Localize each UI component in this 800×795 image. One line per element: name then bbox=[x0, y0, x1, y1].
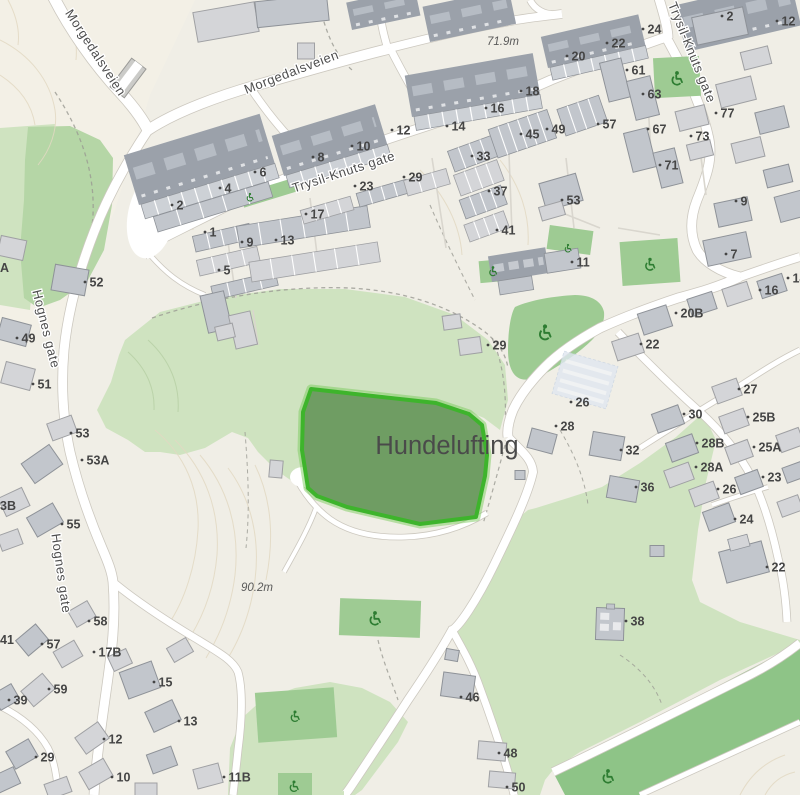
svg-text:37: 37 bbox=[494, 185, 508, 199]
svg-text:16: 16 bbox=[491, 102, 505, 116]
svg-text:11B: 11B bbox=[229, 771, 251, 785]
svg-text:25B: 25B bbox=[753, 411, 776, 425]
svg-text:28A: 28A bbox=[701, 461, 724, 475]
svg-text:13: 13 bbox=[184, 715, 198, 729]
svg-text:36: 36 bbox=[641, 481, 655, 495]
svg-text:71: 71 bbox=[665, 159, 679, 173]
svg-text:9: 9 bbox=[247, 236, 254, 250]
svg-text:28B: 28B bbox=[702, 437, 725, 451]
svg-text:59: 59 bbox=[54, 683, 68, 697]
svg-text:20B: 20B bbox=[681, 307, 704, 321]
svg-text:7: 7 bbox=[731, 248, 738, 262]
svg-text:26: 26 bbox=[723, 483, 737, 497]
svg-text:58: 58 bbox=[94, 615, 108, 629]
svg-text:90.2m: 90.2m bbox=[241, 582, 273, 594]
svg-text:71.9m: 71.9m bbox=[487, 36, 519, 48]
svg-text:4: 4 bbox=[225, 182, 232, 196]
svg-text:29: 29 bbox=[409, 171, 423, 185]
svg-text:14: 14 bbox=[793, 272, 800, 286]
svg-text:39: 39 bbox=[14, 694, 28, 708]
svg-text:41: 41 bbox=[502, 224, 516, 238]
svg-text:25A: 25A bbox=[759, 441, 782, 455]
svg-text:53A: 53A bbox=[87, 454, 110, 468]
svg-text:12: 12 bbox=[397, 124, 411, 138]
svg-text:2: 2 bbox=[727, 10, 734, 24]
svg-text:3B: 3B bbox=[0, 499, 16, 513]
svg-text:Hundelufting: Hundelufting bbox=[375, 432, 518, 460]
svg-text:23: 23 bbox=[768, 471, 782, 485]
svg-text:12: 12 bbox=[782, 15, 796, 29]
svg-text:30: 30 bbox=[689, 408, 703, 422]
svg-text:22: 22 bbox=[772, 561, 786, 575]
svg-text:28: 28 bbox=[561, 420, 575, 434]
svg-text:77: 77 bbox=[721, 107, 735, 121]
svg-text:57: 57 bbox=[47, 638, 61, 652]
svg-text:46: 46 bbox=[466, 691, 480, 705]
svg-text:16: 16 bbox=[765, 284, 779, 298]
svg-text:17: 17 bbox=[311, 208, 325, 222]
svg-text:24: 24 bbox=[648, 23, 662, 37]
svg-text:17B: 17B bbox=[99, 646, 122, 660]
svg-text:29: 29 bbox=[41, 751, 55, 765]
svg-text:26: 26 bbox=[576, 396, 590, 410]
svg-text:33: 33 bbox=[477, 150, 491, 164]
svg-text:53: 53 bbox=[76, 427, 90, 441]
svg-text:50: 50 bbox=[512, 781, 526, 795]
svg-text:12: 12 bbox=[109, 733, 123, 747]
svg-text:18: 18 bbox=[526, 85, 540, 99]
svg-text:57: 57 bbox=[603, 118, 617, 132]
svg-text:55: 55 bbox=[67, 518, 81, 532]
svg-text:41: 41 bbox=[0, 633, 14, 647]
svg-text:10: 10 bbox=[117, 771, 131, 785]
svg-text:38: 38 bbox=[631, 615, 645, 629]
svg-text:A: A bbox=[0, 261, 9, 275]
svg-text:48: 48 bbox=[504, 747, 518, 761]
svg-text:73: 73 bbox=[696, 130, 710, 144]
svg-text:63: 63 bbox=[648, 88, 662, 102]
svg-text:14: 14 bbox=[452, 120, 466, 134]
svg-text:67: 67 bbox=[653, 123, 667, 137]
svg-text:49: 49 bbox=[22, 332, 36, 346]
svg-text:27: 27 bbox=[744, 383, 758, 397]
svg-text:29: 29 bbox=[493, 339, 507, 353]
svg-text:22: 22 bbox=[646, 338, 660, 352]
svg-text:24: 24 bbox=[740, 513, 754, 527]
svg-text:32: 32 bbox=[626, 444, 640, 458]
svg-text:1: 1 bbox=[210, 226, 217, 240]
svg-text:22: 22 bbox=[612, 37, 626, 51]
svg-text:13: 13 bbox=[281, 234, 295, 248]
svg-text:2: 2 bbox=[177, 199, 184, 213]
svg-text:49: 49 bbox=[552, 123, 566, 137]
svg-text:11: 11 bbox=[577, 256, 590, 270]
svg-text:51: 51 bbox=[38, 378, 52, 392]
svg-text:15: 15 bbox=[159, 676, 173, 690]
svg-text:8: 8 bbox=[318, 151, 325, 165]
svg-text:5: 5 bbox=[224, 264, 231, 278]
svg-text:52: 52 bbox=[90, 276, 104, 290]
svg-text:45: 45 bbox=[526, 128, 540, 142]
svg-text:23: 23 bbox=[360, 180, 374, 194]
svg-text:53: 53 bbox=[567, 194, 581, 208]
svg-text:9: 9 bbox=[741, 195, 748, 209]
svg-text:20: 20 bbox=[572, 50, 586, 64]
svg-text:61: 61 bbox=[632, 64, 646, 78]
svg-text:6: 6 bbox=[260, 166, 267, 180]
svg-text:10: 10 bbox=[357, 140, 371, 154]
